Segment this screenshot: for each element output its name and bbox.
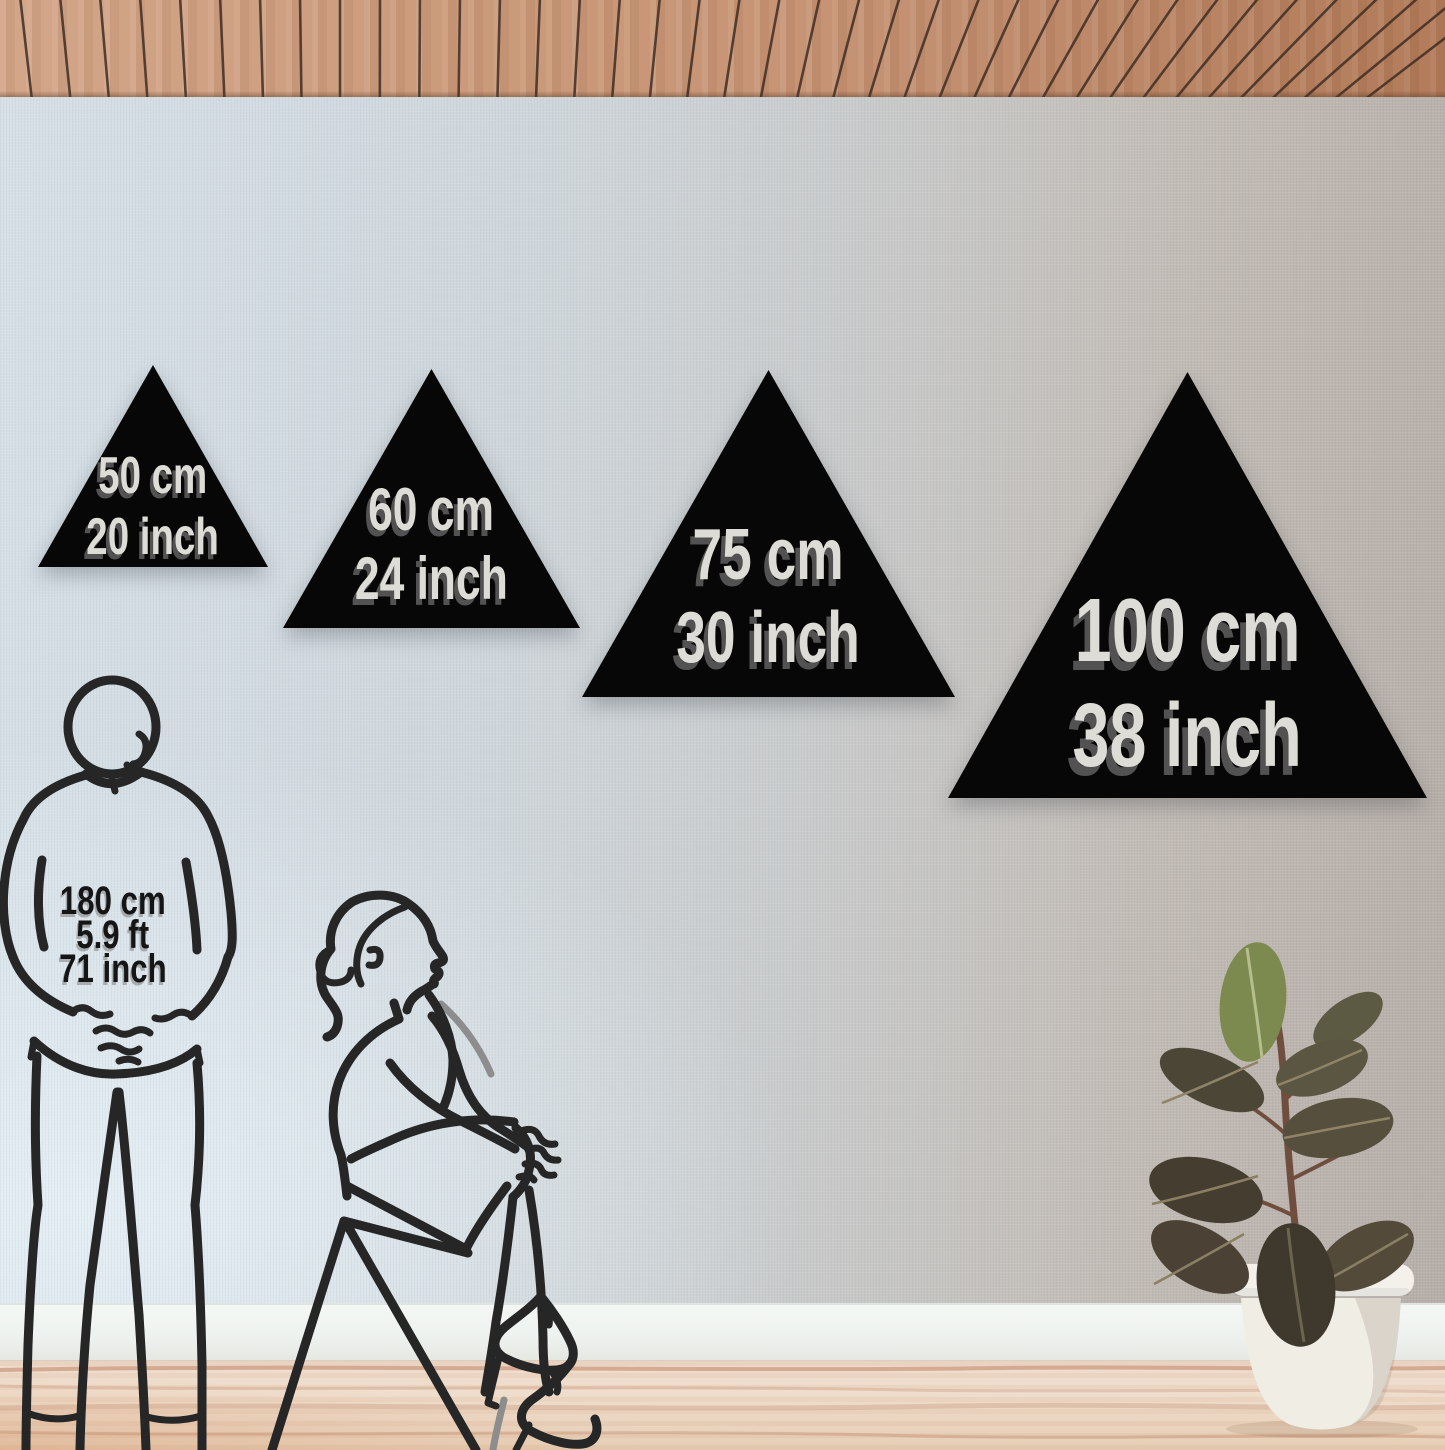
potted-plant <box>1139 939 1426 1438</box>
woman-hair <box>321 902 352 1037</box>
man-trouser-cuffs <box>27 1413 201 1420</box>
standing-man-line-art <box>3 680 232 1450</box>
room-scene: 50 cm 20 inch 60 cm 24 inch 75 cm 30 inc… <box>0 0 1445 1450</box>
man-hands <box>72 1008 192 1062</box>
woman-shoe-upper <box>495 1296 573 1370</box>
man-right-leg <box>195 1063 202 1450</box>
man-ear-line <box>133 734 146 764</box>
height-inch-label: 71 inch <box>59 952 167 986</box>
woman-calf <box>529 1190 549 1392</box>
man-height-label: 180 cm 5.9 ft 71 inch <box>38 884 188 986</box>
line-art-overlay <box>0 0 1445 1450</box>
woman-ear <box>369 949 380 965</box>
stool-line-art <box>272 1221 476 1450</box>
plant-leaves <box>1142 939 1398 1234</box>
woman-back <box>333 1019 399 1196</box>
man-left-leg <box>26 1056 38 1450</box>
floor-grain <box>0 1367 1445 1437</box>
